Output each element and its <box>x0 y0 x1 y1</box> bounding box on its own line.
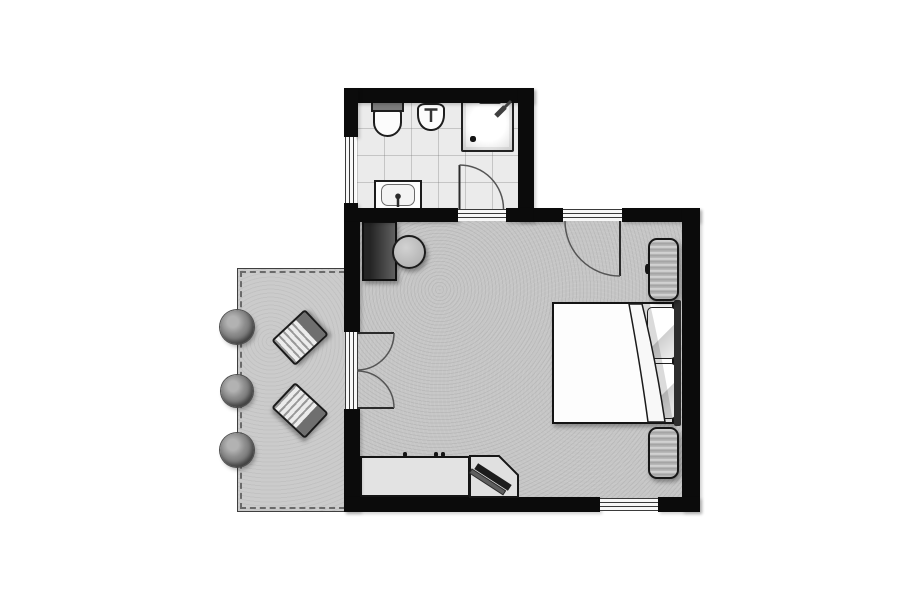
wall-bath-bottom-left <box>344 208 458 222</box>
bedside-bench-top <box>648 238 679 301</box>
counter-tick-3 <box>441 452 445 457</box>
wall-bottom-right <box>658 497 700 512</box>
round-table <box>392 235 426 269</box>
pillow-bottom <box>647 363 676 419</box>
entry-door-threshold <box>563 209 622 221</box>
pillow-top <box>647 307 676 359</box>
bathroom-window <box>345 137 356 203</box>
wall-top-mid <box>534 208 563 222</box>
south-window <box>600 498 658 511</box>
wall-bottom-left <box>344 497 600 512</box>
wall-left-upper <box>344 222 360 332</box>
wall-bath-top <box>344 88 534 103</box>
counter-desk <box>360 456 470 497</box>
headboard <box>674 300 681 426</box>
wall-bath-left-upper <box>344 88 358 137</box>
bush-2 <box>221 375 253 407</box>
bush-3 <box>220 433 254 467</box>
wall-right <box>682 208 700 512</box>
shower-tray <box>461 99 514 152</box>
wall-bath-right <box>518 88 534 222</box>
counter-tick-2 <box>434 452 438 457</box>
french-door-threshold <box>345 332 358 409</box>
bush-1 <box>220 310 254 344</box>
bench-knob <box>645 264 650 274</box>
bathroom-door-threshold <box>458 209 506 221</box>
floor-plan-canvas <box>0 0 913 608</box>
counter-tick-1 <box>403 452 407 457</box>
bedside-bench-bottom <box>648 427 679 479</box>
vanity-basin <box>381 184 415 206</box>
wall-bath-bottom-right <box>506 208 534 222</box>
shower-drain <box>470 136 476 142</box>
